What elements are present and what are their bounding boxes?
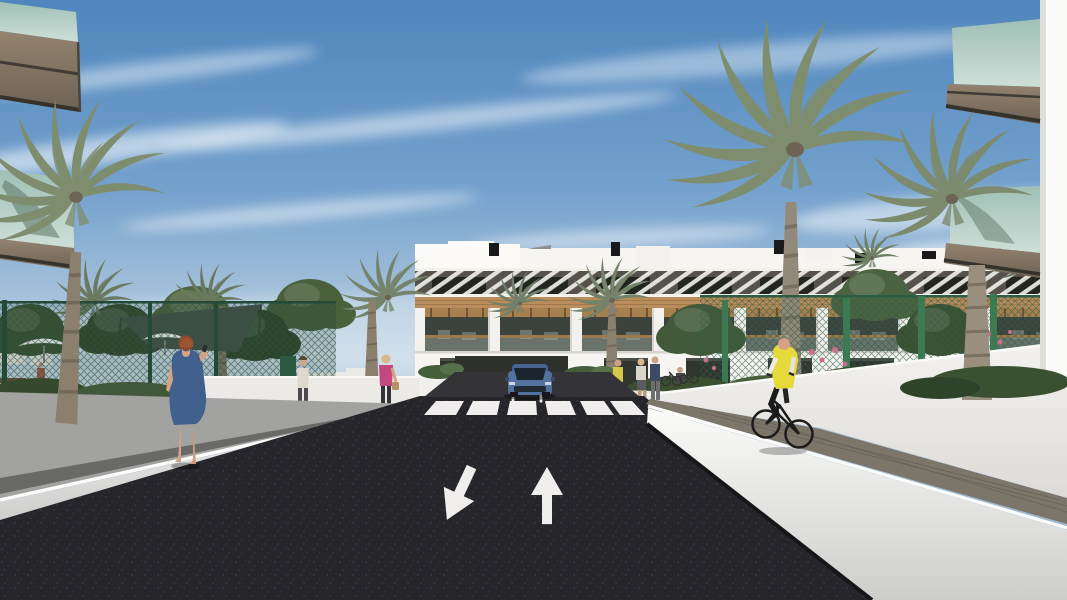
corner-pillar [415,308,425,352]
architectural-render-scene [0,0,1067,600]
scene-canvas [0,0,1067,600]
glass-balcony [952,19,1040,87]
roof-box [636,246,670,268]
roof-box [448,241,494,259]
handbag [392,382,399,390]
car-grille [514,386,546,392]
roof-box [806,248,832,260]
windshield [514,368,546,380]
